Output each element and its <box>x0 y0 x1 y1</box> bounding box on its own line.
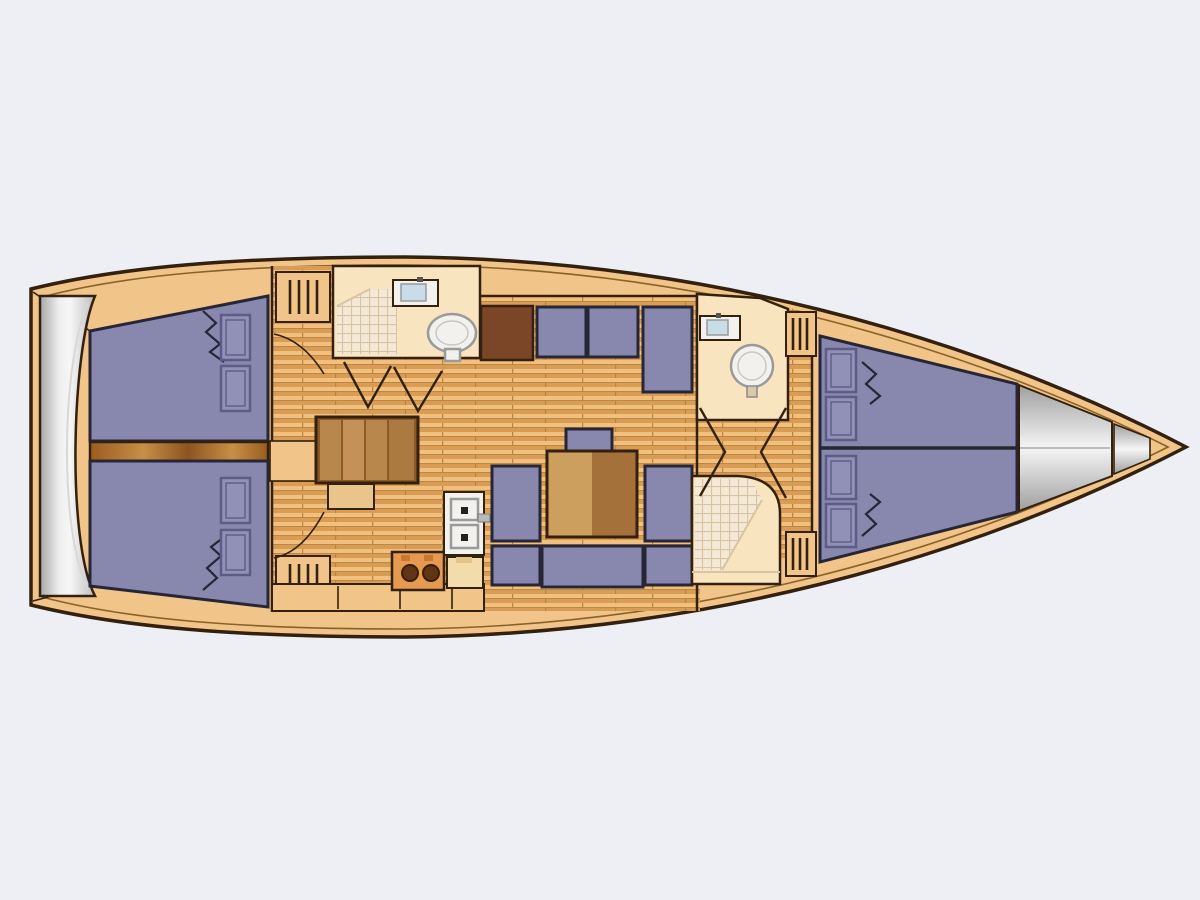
pillow <box>826 397 856 440</box>
engine-compartment <box>90 442 268 461</box>
aft-head <box>333 266 480 361</box>
settee-cushion <box>537 307 586 357</box>
forward-head <box>697 294 788 420</box>
saloon-stool <box>566 429 612 452</box>
pillow <box>826 349 856 392</box>
pillow <box>221 315 250 360</box>
settee-cushion <box>492 546 540 585</box>
hanging-locker-forward-top <box>786 312 816 356</box>
settee-cushion <box>645 546 692 585</box>
saloon-table <box>547 451 637 537</box>
faucet <box>478 514 490 522</box>
aft-cabin-starboard <box>90 461 268 607</box>
yacht-layout-diagram <box>0 0 1200 900</box>
cabinet <box>481 306 533 360</box>
galley-sink <box>444 492 490 555</box>
settee-bench <box>542 546 643 587</box>
galley-cabinet <box>447 557 483 588</box>
settee-cushion <box>588 307 638 357</box>
pillow <box>221 366 250 411</box>
stove <box>392 552 444 590</box>
hanging-locker-aft-port <box>276 272 330 322</box>
settee-corner-cushion <box>643 307 692 392</box>
pillow <box>826 504 856 547</box>
pillow <box>221 478 250 523</box>
settee-cushion <box>645 466 692 541</box>
forward-shower <box>692 476 780 584</box>
pillow <box>221 530 250 575</box>
pillow <box>826 456 856 499</box>
hanging-locker-forward-bottom <box>786 532 816 576</box>
layout-drawing <box>0 0 1200 900</box>
washbasin <box>700 313 740 340</box>
settee-cushion <box>492 466 540 541</box>
washbasin <box>393 277 438 306</box>
bottom-step <box>328 484 374 509</box>
